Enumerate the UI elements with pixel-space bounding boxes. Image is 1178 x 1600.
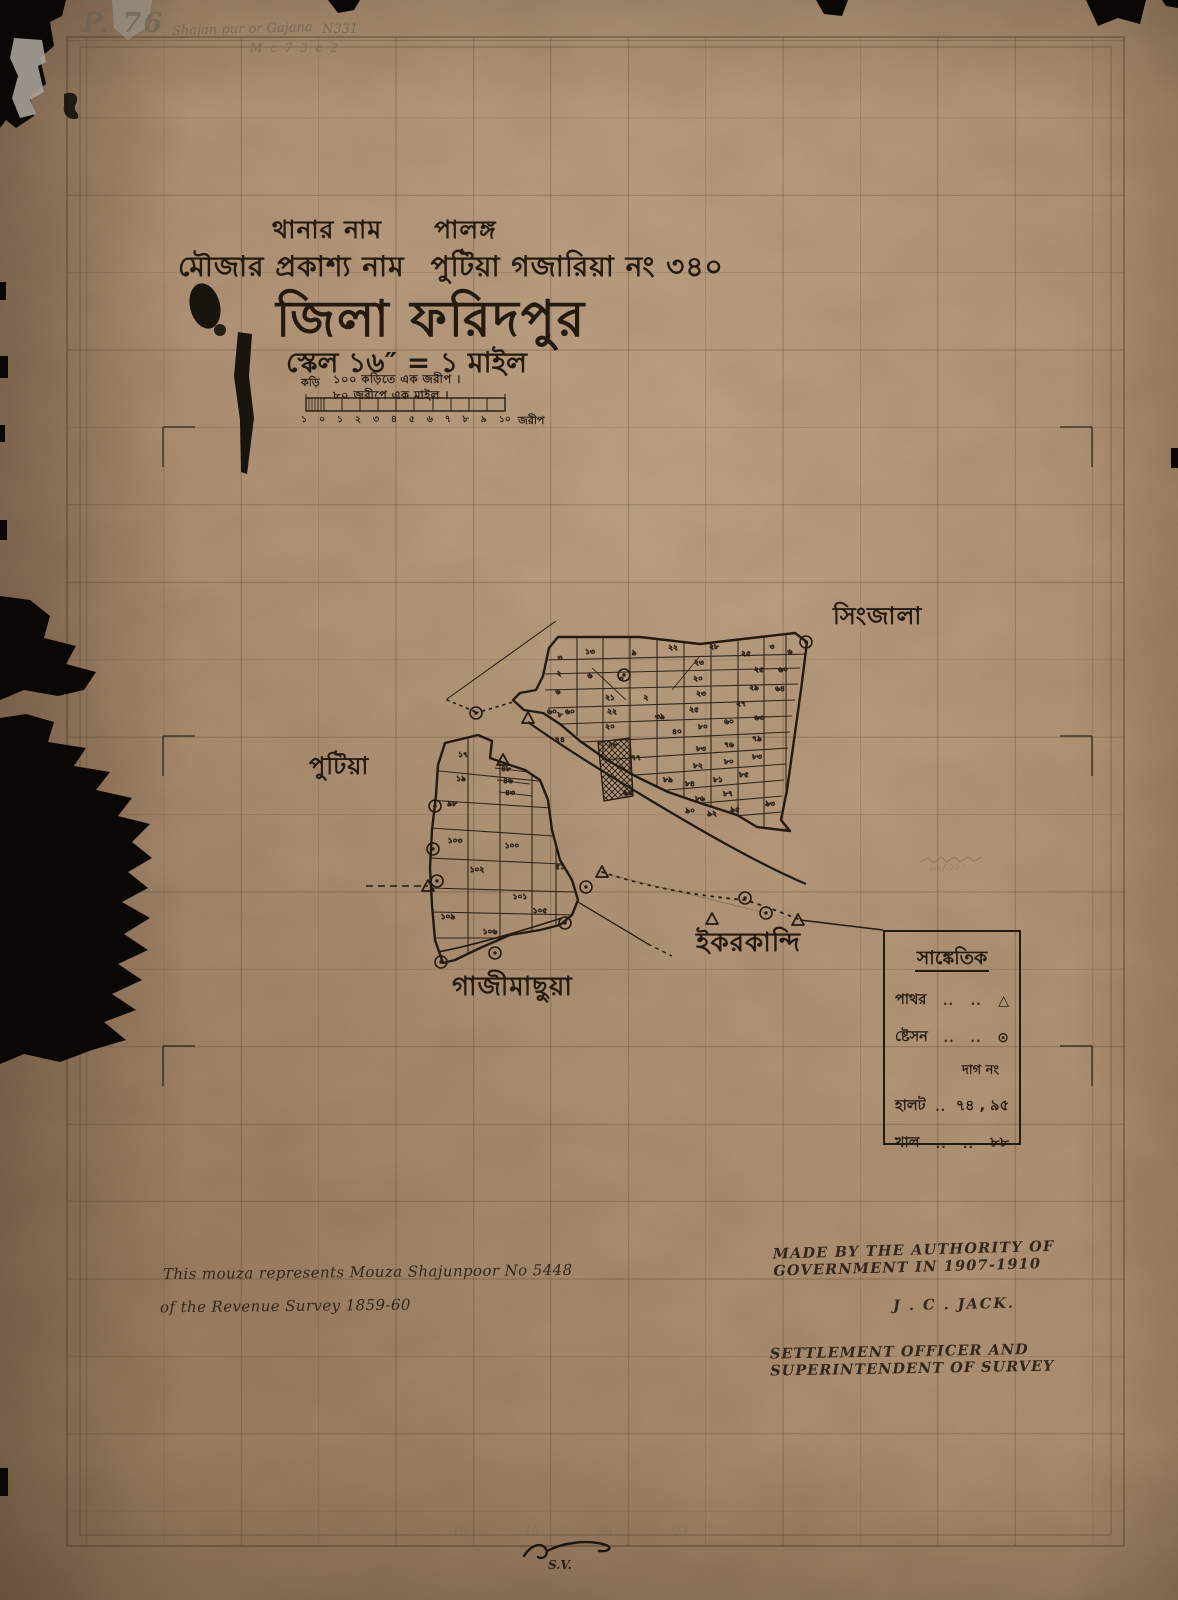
plot-number: ১০৯: [441, 912, 456, 921]
plot-number: ২১: [605, 693, 615, 702]
plot-number: ২৫: [754, 665, 764, 674]
village-label-singjala: সিংজালা: [833, 598, 922, 638]
legend-value: ৭৪ , ৯৫: [956, 1095, 1009, 1119]
stone-triangle-icon: △: [998, 993, 1009, 1009]
legend-row-station: ষ্টেসন .. .. ⊙: [889, 1026, 1015, 1050]
legend-dots: ..: [943, 994, 954, 1008]
station-dot: [434, 805, 436, 807]
plot-number: ৯২: [707, 809, 717, 818]
legend-dots: ..: [936, 1137, 947, 1151]
officer-name: J . C . JACK.: [893, 1295, 1015, 1315]
revenue-survey-note-line2: of the Revenue Survey 1859-60: [160, 1296, 411, 1317]
plot-number: ৪৩: [505, 788, 515, 797]
plot-number: ৩৯: [655, 712, 665, 721]
south-spur-line: [578, 902, 648, 944]
plot-number: ১০৫: [533, 906, 548, 915]
plot-number: ৩: [558, 653, 563, 662]
village-label-gajimachuya: গাজীমাছুয়া: [452, 966, 573, 1010]
legend-tie-line: [800, 920, 883, 930]
plot-number: ৫১: [555, 862, 565, 871]
legend-dots: ..: [944, 1031, 955, 1045]
station-dot: [805, 641, 807, 643]
plot-number: ৮১: [713, 775, 723, 784]
legend-value: ৮৮: [990, 1132, 1009, 1156]
plot-number: ৪৮: [501, 764, 512, 773]
station-dot: [432, 848, 434, 850]
plot-number: ২৭: [736, 699, 746, 708]
plot-number: ২৩: [696, 689, 706, 698]
legend-dots: ..: [935, 1100, 946, 1114]
plot-number: ৯৫: [730, 805, 740, 814]
scale-tick-label: ১: [301, 413, 307, 428]
plot-number: ৬: [788, 647, 793, 656]
mouza-parcel-map: ৩২৬৮১৩৯৬৩২২২৮২৩২০২৩২৫২৫৩২৫২৯২৭৬৬০৬৪৬০৬০২…: [366, 621, 883, 968]
stone-triangle-icon: [522, 712, 534, 723]
construction-line: [447, 621, 556, 699]
plot-number: ৯৩: [765, 799, 775, 808]
plot-number: ৩: [619, 674, 624, 683]
plot-number: ৬: [588, 671, 593, 680]
scale-tick-label: ১: [337, 413, 343, 428]
plot-number: ২২: [607, 707, 617, 716]
plot-number: ৮৫: [739, 770, 749, 779]
plot-number: ৪০: [672, 727, 682, 736]
station-icon: ⊙: [997, 1030, 1009, 1046]
plot-number: ৬৪: [775, 684, 785, 693]
scale-tick-label: ৩: [373, 413, 379, 428]
plot-number: ৯০: [685, 806, 695, 815]
scale-tick-label: ২: [355, 413, 361, 428]
scale-tick-label: ৯: [481, 413, 487, 428]
legend-row-khal: খাল .. .. ৮৮: [889, 1132, 1015, 1156]
legend-dots: ..: [963, 1137, 974, 1151]
dotted-traverse-2: [602, 872, 798, 919]
scale-bar-unit: জরীপ: [518, 412, 545, 431]
plot-number: ৬০: [778, 665, 788, 674]
station-dot: [494, 952, 496, 954]
legend-label: পাথর: [895, 989, 926, 1013]
station-dot: [436, 880, 438, 882]
station-dot: [475, 712, 477, 714]
plot-number: ৮০: [698, 722, 708, 731]
station-dot: [744, 897, 746, 899]
plot-number: ৮০: [724, 757, 734, 766]
village-label-putiya: পুটিয়া: [309, 748, 369, 788]
pencil-number-note: N331: [322, 22, 358, 37]
plot-number: ৮২: [693, 761, 703, 770]
scale-bar-tick-labels: ১০১২৩৪৫৬৭৮৯১০: [301, 413, 511, 428]
station-dot: [564, 922, 566, 924]
plot-number: ১০২: [470, 865, 485, 874]
legend-subhead-plot-no: দাগ নং: [889, 1061, 1015, 1082]
plot-number: ৭৪: [555, 735, 565, 744]
plot-number: ৮৬: [695, 794, 705, 803]
officer-title: SETTLEMENT OFFICER AND SUPERINTENDENT OF…: [770, 1338, 1178, 1379]
dotted-traverse-1: [447, 700, 513, 713]
plot-number: ২: [557, 669, 562, 678]
plot-number: ১৭: [458, 750, 468, 759]
scale-tick-label: ৭: [445, 413, 451, 428]
plot-number: ৭৯: [752, 734, 762, 743]
legend-dots: ..: [970, 1031, 981, 1045]
plot-number: ৭৬: [724, 740, 734, 749]
plot-number: ৮৪: [685, 779, 695, 788]
legend-title: সাঙ্কেতিক: [889, 944, 1015, 976]
south-spur-dash: [648, 944, 672, 956]
plot-number: ৬০: [724, 717, 734, 726]
station-dot: [440, 961, 442, 963]
station-dot: [765, 912, 767, 914]
village-label-ikarkandi: ইকরকান্দি: [696, 922, 801, 966]
plot-number: ১০০: [505, 841, 520, 850]
scale-tick-label: ০: [319, 413, 325, 428]
plot-number: ৪৬: [503, 776, 513, 785]
plot-number: ৯৫: [623, 788, 633, 797]
plot-number: ২৯: [749, 683, 759, 692]
plot-number: ৯: [632, 648, 637, 657]
legend-row-stone: পাথর .. .. △: [889, 989, 1015, 1013]
legend-row-halot: হালট .. ৭৪ , ৯৫: [889, 1095, 1015, 1119]
signature-flourish: [524, 1542, 609, 1558]
plot-number: ৮৩: [696, 744, 706, 753]
ne-cluster-boundary: [513, 633, 807, 831]
plot-number: ৮৯: [663, 775, 673, 784]
plot-number: ২৩: [694, 658, 704, 667]
plot-number: ২০: [693, 674, 703, 683]
plot-number: ২: [644, 693, 649, 702]
scale-tick-label: ১০: [499, 413, 511, 428]
surveyor-initials: S.V.: [548, 1558, 572, 1572]
legend-label: খাল: [895, 1132, 920, 1156]
station-dot: [585, 886, 587, 888]
scale-note-2: ৮০ জরীপে এক মাইল ।: [333, 387, 449, 406]
plot-number: ১০৩: [448, 836, 463, 845]
plot-number: ৬: [556, 687, 561, 696]
plot-number: ৩: [770, 642, 775, 651]
plot-number: ১৯: [456, 774, 466, 783]
plot-number: ৬৩: [754, 713, 764, 722]
plot-number: ৭৭: [631, 753, 641, 762]
kori-label: কড়ি: [301, 374, 320, 393]
map-sheet: ৩২৬৮১৩৯৬৩২২২৮২৩২০২৩২৫২৫৩২৫২৯২৭৬৬০৬৪৬০৬০২…: [0, 0, 1178, 1600]
plot-number: ৮: [558, 710, 564, 719]
legend-box: সাঙ্কেতিক পাথর .. .. △ ষ্টেসন .. .. ⊙ দা…: [883, 930, 1021, 1145]
plot-number: ১০১: [513, 892, 528, 901]
plot-number: ৬০: [547, 707, 557, 716]
pencil-sub-note: M c 7 3 c 2: [250, 41, 340, 55]
plot-number: ২০: [605, 722, 615, 731]
plot-number: ৬০: [565, 707, 575, 716]
plot-number: ৮৩: [752, 752, 762, 761]
legend-dots: ..: [971, 994, 982, 1008]
plot-number: ২৫: [689, 705, 699, 714]
legend-label: হালট: [895, 1095, 926, 1119]
plot-number: ৮৭: [723, 789, 733, 798]
plot-number: ৯৮: [447, 799, 458, 808]
scale-tick-label: ৫: [409, 413, 415, 428]
plot-number: ২৫: [741, 649, 751, 658]
scale-tick-label: ৪: [391, 413, 397, 428]
catalog-number-pencil: P. 76: [82, 8, 164, 39]
legend-label: ষ্টেসন: [895, 1026, 928, 1050]
plot-number: ২৮: [709, 642, 720, 651]
plot-number: ১৩: [585, 647, 595, 656]
plot-number: ২২: [668, 643, 678, 652]
plot-number: ১০৬: [483, 927, 498, 936]
plot-number: ২৮: [608, 740, 619, 749]
scale-tick-label: ৮: [463, 413, 469, 428]
scale-tick-label: ৬: [427, 413, 433, 428]
